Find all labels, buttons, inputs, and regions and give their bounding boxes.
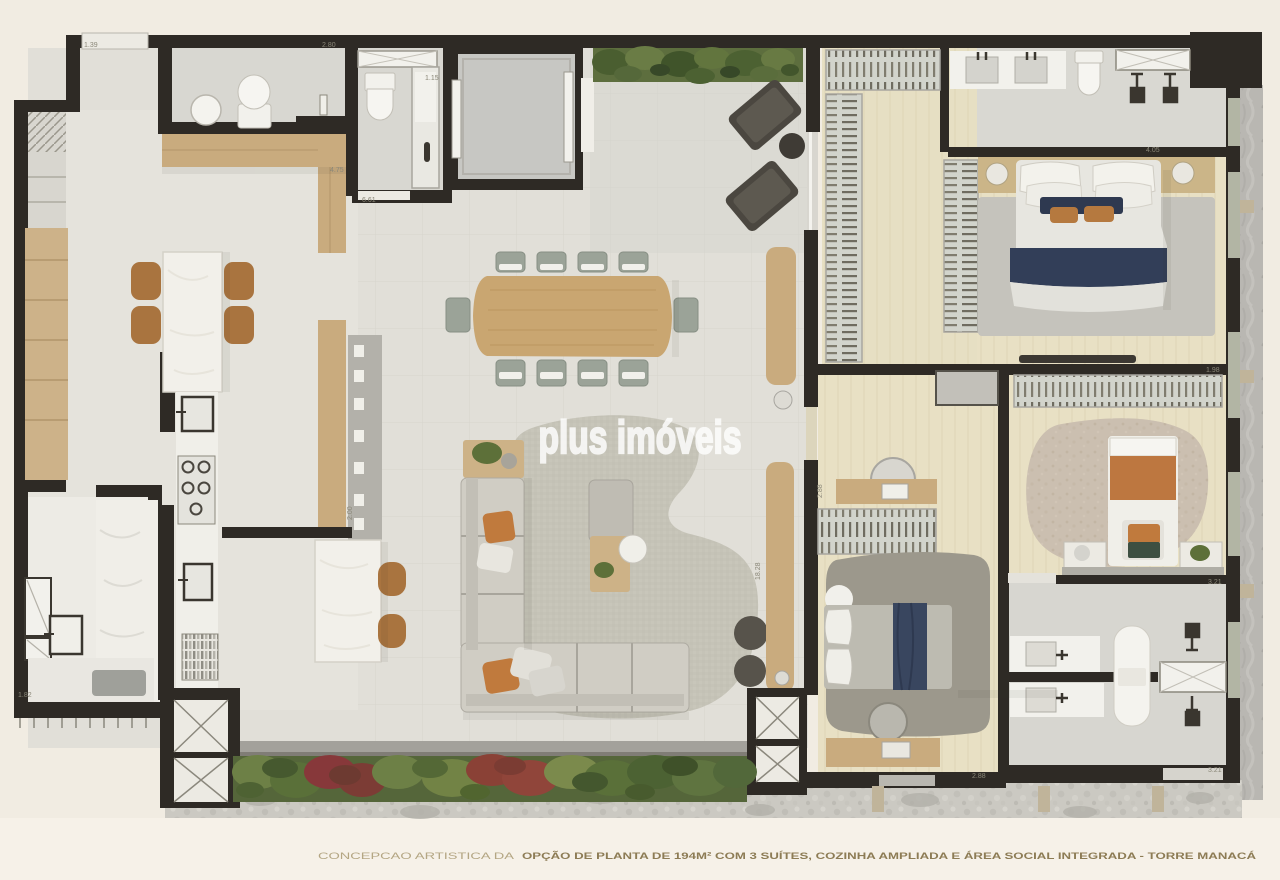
svg-text:3.21: 3.21 xyxy=(1208,767,1222,774)
svg-text:18.28: 18.28 xyxy=(755,562,762,580)
svg-text:2.00: 2.00 xyxy=(347,506,354,520)
svg-text:1.39: 1.39 xyxy=(84,42,98,49)
svg-text:1.15: 1.15 xyxy=(425,75,439,82)
svg-text:4.75: 4.75 xyxy=(330,167,344,174)
svg-text:2.88: 2.88 xyxy=(817,484,824,498)
svg-text:3.21: 3.21 xyxy=(1208,579,1222,586)
svg-text:2.80: 2.80 xyxy=(322,42,336,49)
svg-text:1.98: 1.98 xyxy=(1206,367,1220,374)
svg-text:1.82: 1.82 xyxy=(18,692,32,699)
svg-text:4.05: 4.05 xyxy=(1146,147,1160,154)
svg-text:plus imóveis: plus imóveis xyxy=(539,411,742,463)
svg-text:6.61: 6.61 xyxy=(362,197,376,204)
svg-text:2.88: 2.88 xyxy=(972,773,986,780)
svg-text:CONCEPCAO ARTISTICA DA: CONCEPCAO ARTISTICA DA xyxy=(318,851,514,861)
svg-text:OPÇÃO DE PLANTA DE 194M² COM 3: OPÇÃO DE PLANTA DE 194M² COM 3 SUÍTES, C… xyxy=(522,851,1256,862)
